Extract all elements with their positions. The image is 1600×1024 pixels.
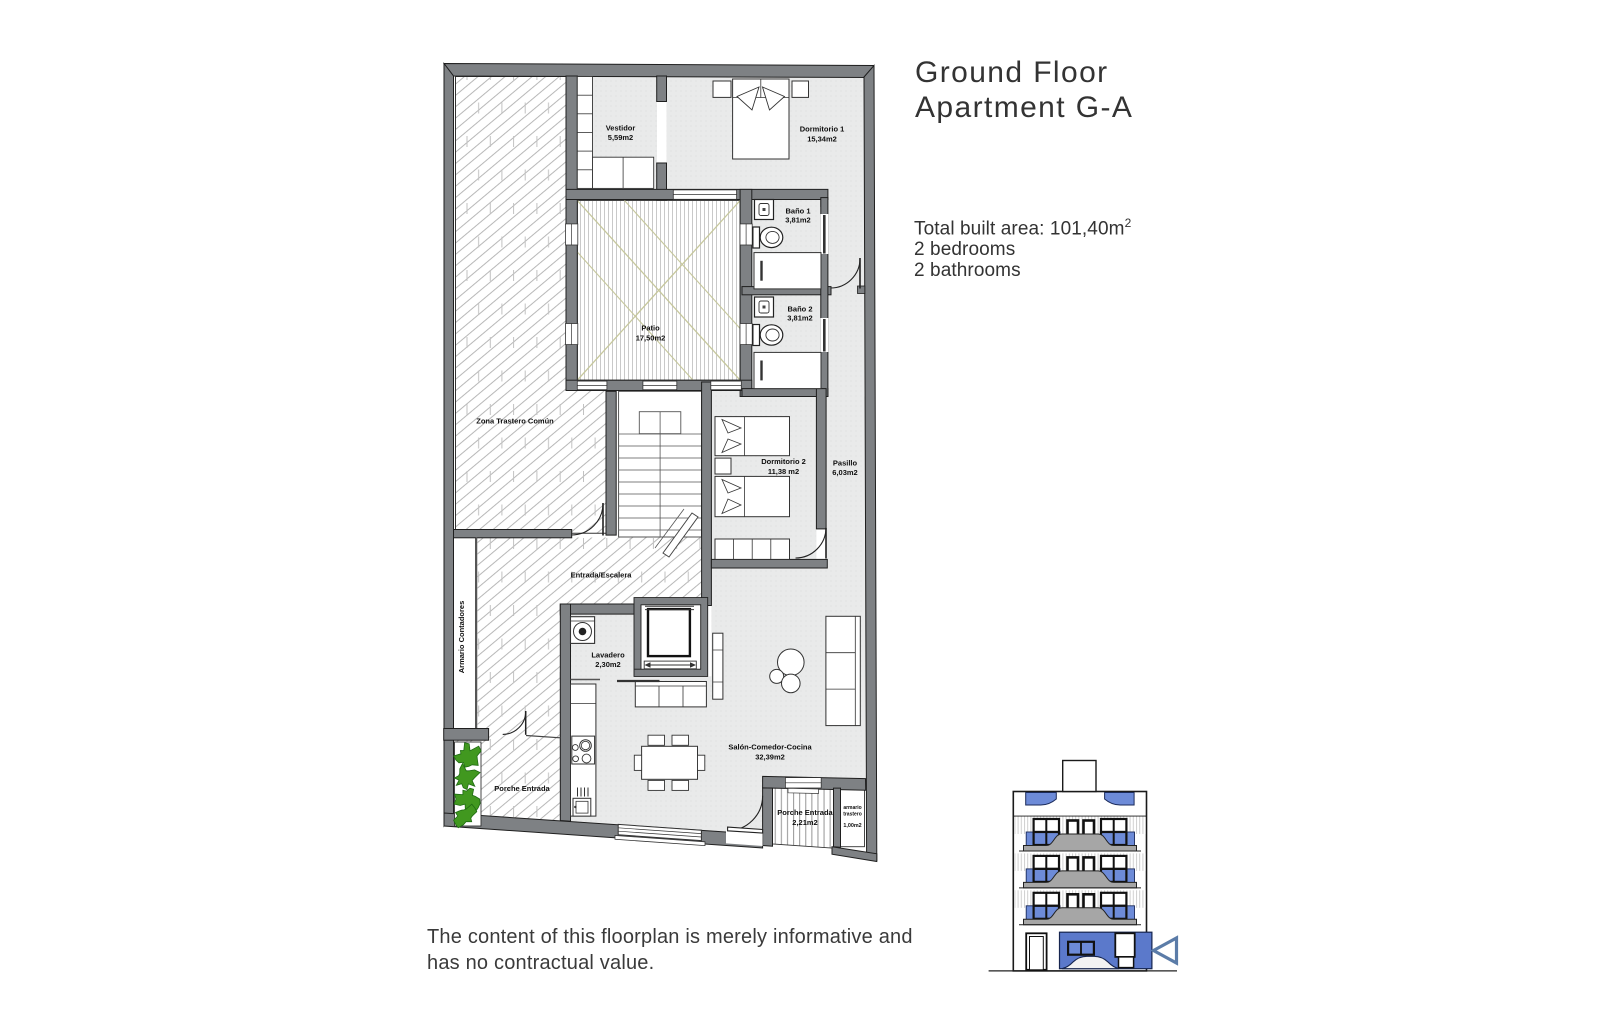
svg-text:3,81m2: 3,81m2 xyxy=(787,314,812,323)
svg-text:11,38 m2: 11,38 m2 xyxy=(768,467,799,476)
svg-text:32,39m2: 32,39m2 xyxy=(755,753,785,762)
svg-text:2,30m2: 2,30m2 xyxy=(595,660,620,669)
svg-text:Lavadero: Lavadero xyxy=(591,651,625,660)
svg-text:Porche Entrada: Porche Entrada xyxy=(494,784,550,793)
svg-text:Baño 2: Baño 2 xyxy=(787,305,812,314)
svg-text:Pasillo: Pasillo xyxy=(833,459,858,468)
svg-text:Entrada/Escalera: Entrada/Escalera xyxy=(571,571,633,580)
svg-text:Vestidor: Vestidor xyxy=(606,124,636,133)
svg-text:Salón-Comedor-Cocina: Salón-Comedor-Cocina xyxy=(728,743,812,752)
svg-text:5,59m2: 5,59m2 xyxy=(608,133,633,142)
svg-text:2,21m2: 2,21m2 xyxy=(792,818,817,827)
svg-text:Dormitorio 1: Dormitorio 1 xyxy=(800,125,845,134)
svg-text:Porche Entrada: Porche Entrada xyxy=(777,808,833,817)
svg-text:1,00m2: 1,00m2 xyxy=(843,823,861,829)
svg-text:Patio: Patio xyxy=(641,324,660,333)
svg-text:Zona Trastero Común: Zona Trastero Común xyxy=(476,417,554,426)
svg-text:15,34m2: 15,34m2 xyxy=(807,135,837,144)
svg-text:Baño 1: Baño 1 xyxy=(785,207,810,216)
svg-text:Armario Contadores: Armario Contadores xyxy=(457,601,466,674)
svg-text:17,50m2: 17,50m2 xyxy=(636,334,666,343)
svg-text:trastero: trastero xyxy=(843,812,862,818)
svg-text:3,81m2: 3,81m2 xyxy=(785,216,810,225)
svg-text:Dormitorio 2: Dormitorio 2 xyxy=(761,457,806,466)
svg-text:6,03m2: 6,03m2 xyxy=(832,468,857,477)
svg-text:armario: armario xyxy=(843,805,861,811)
